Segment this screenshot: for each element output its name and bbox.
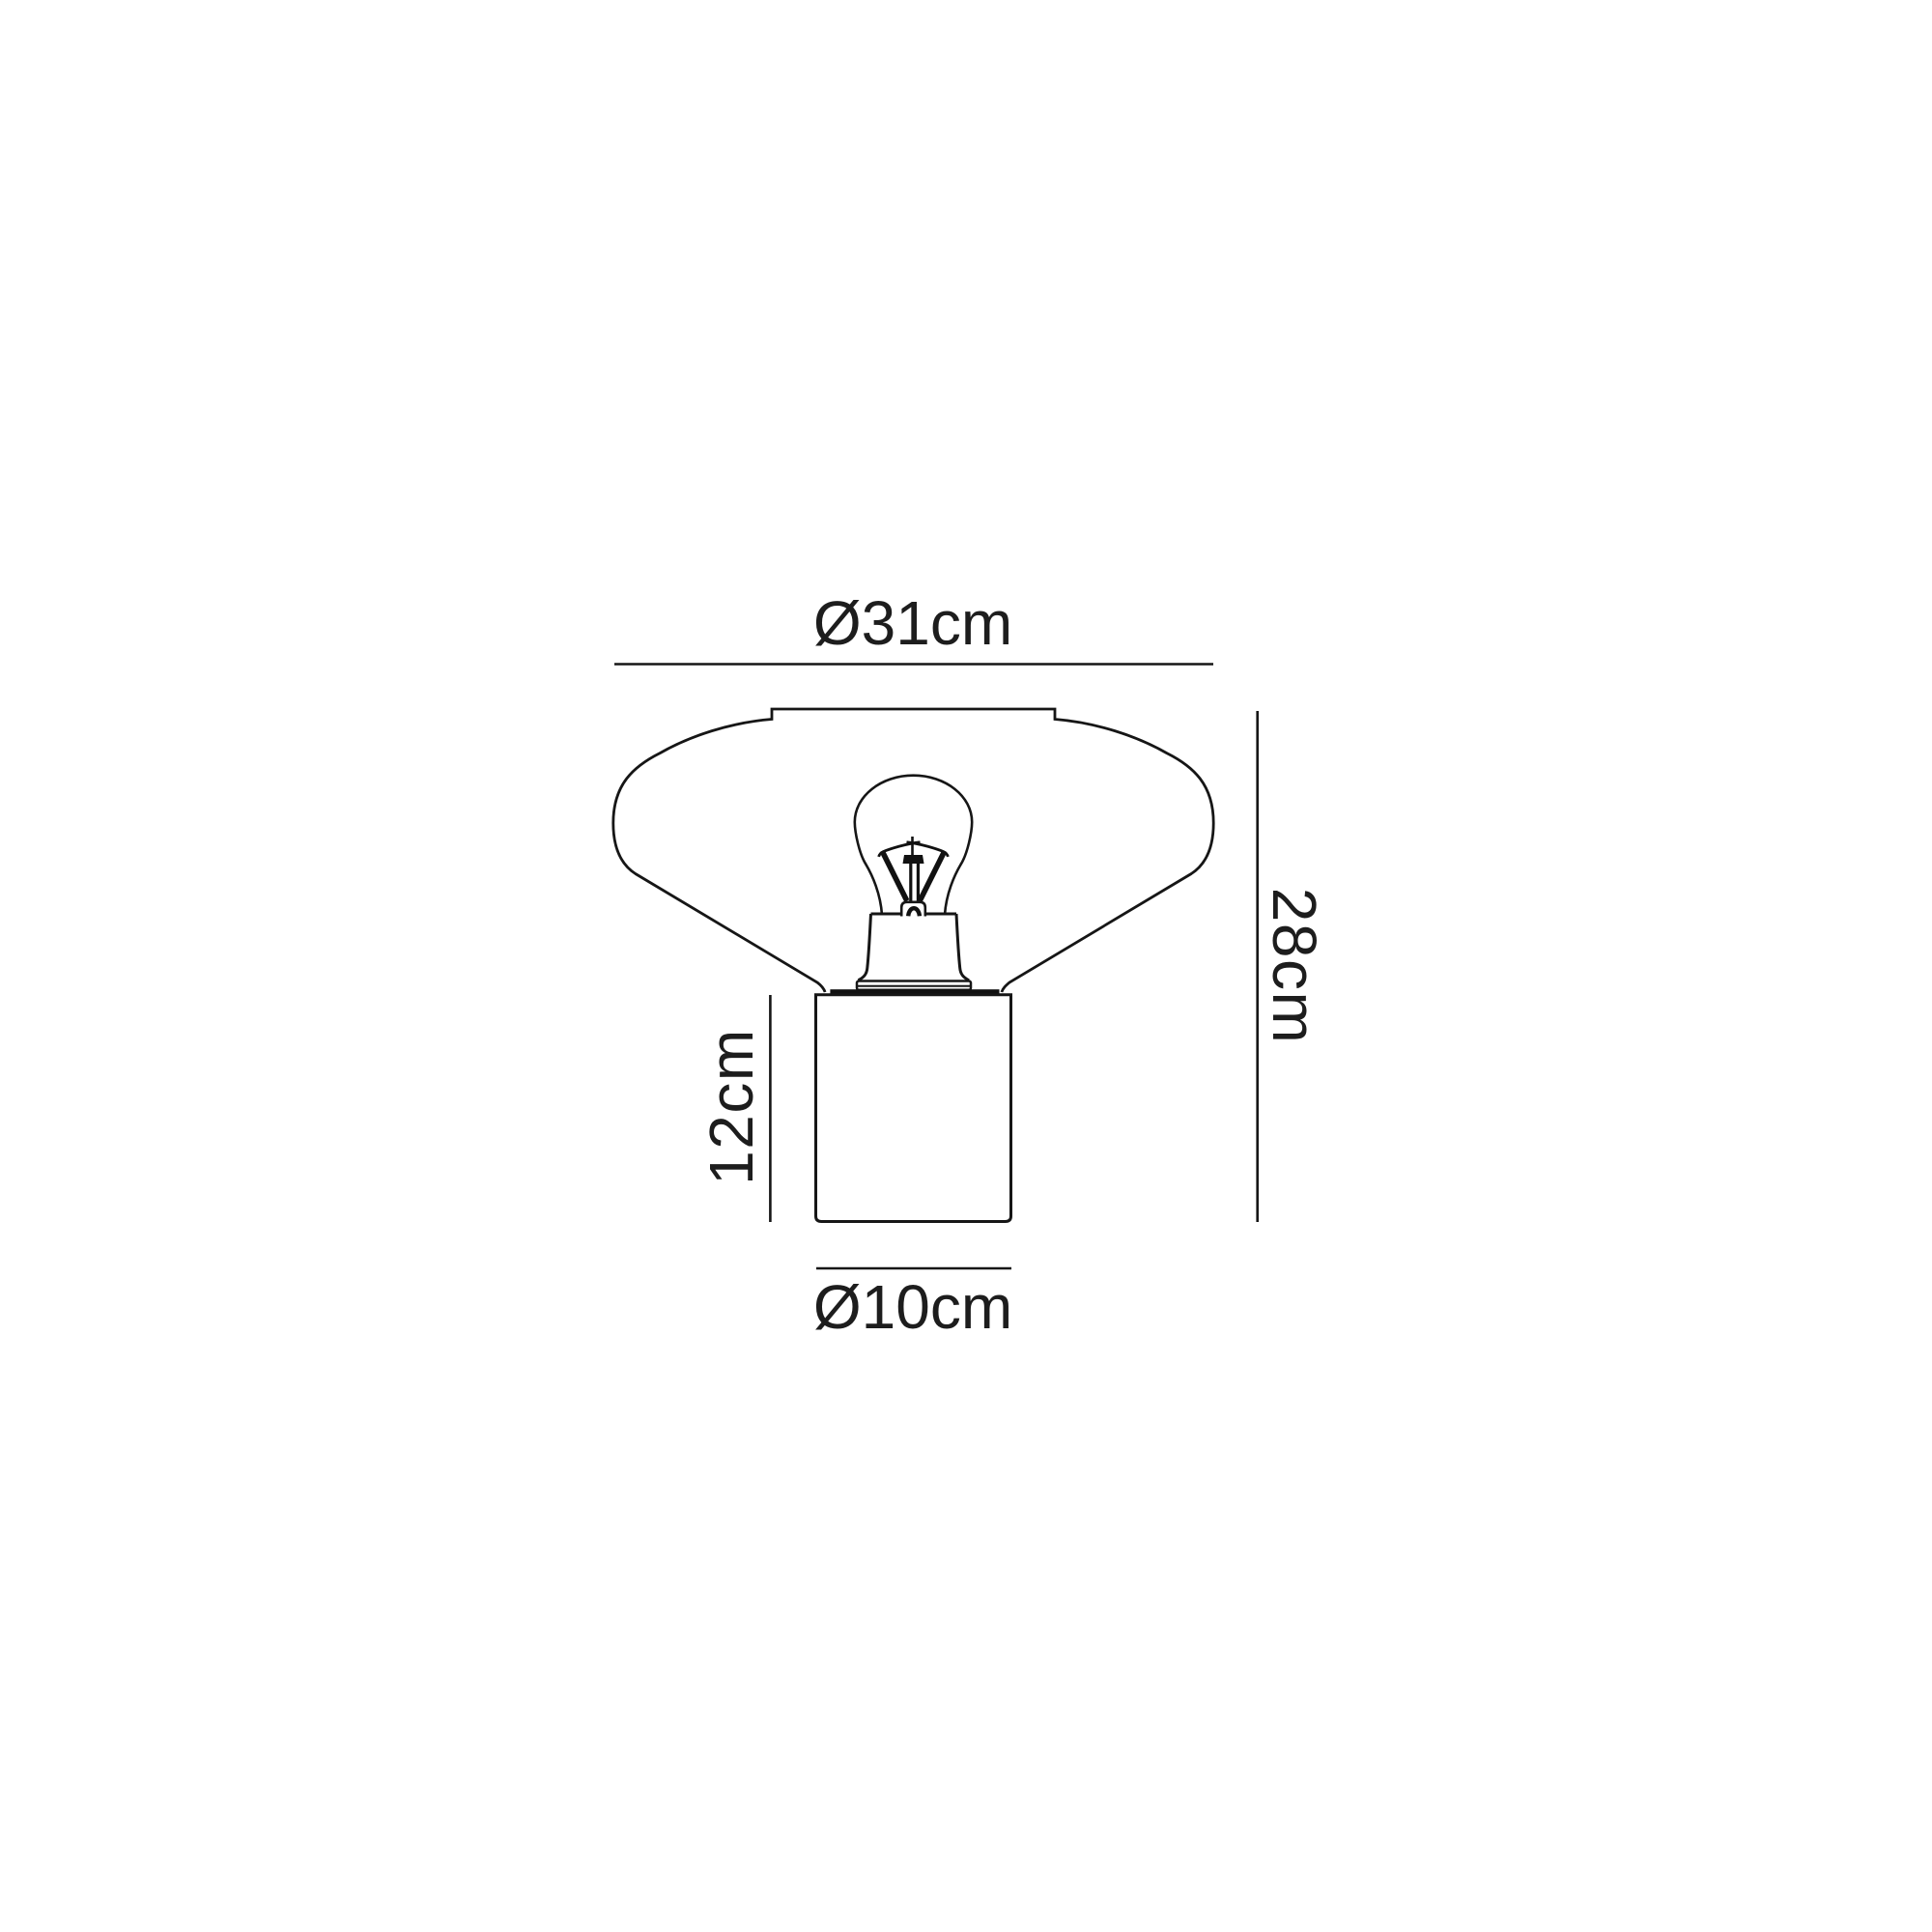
svg-text:Ø10cm: Ø10cm	[813, 1272, 1012, 1342]
svg-text:12cm: 12cm	[696, 1028, 766, 1185]
svg-text:Ø31cm: Ø31cm	[813, 588, 1012, 658]
svg-text:28cm: 28cm	[1260, 888, 1329, 1045]
